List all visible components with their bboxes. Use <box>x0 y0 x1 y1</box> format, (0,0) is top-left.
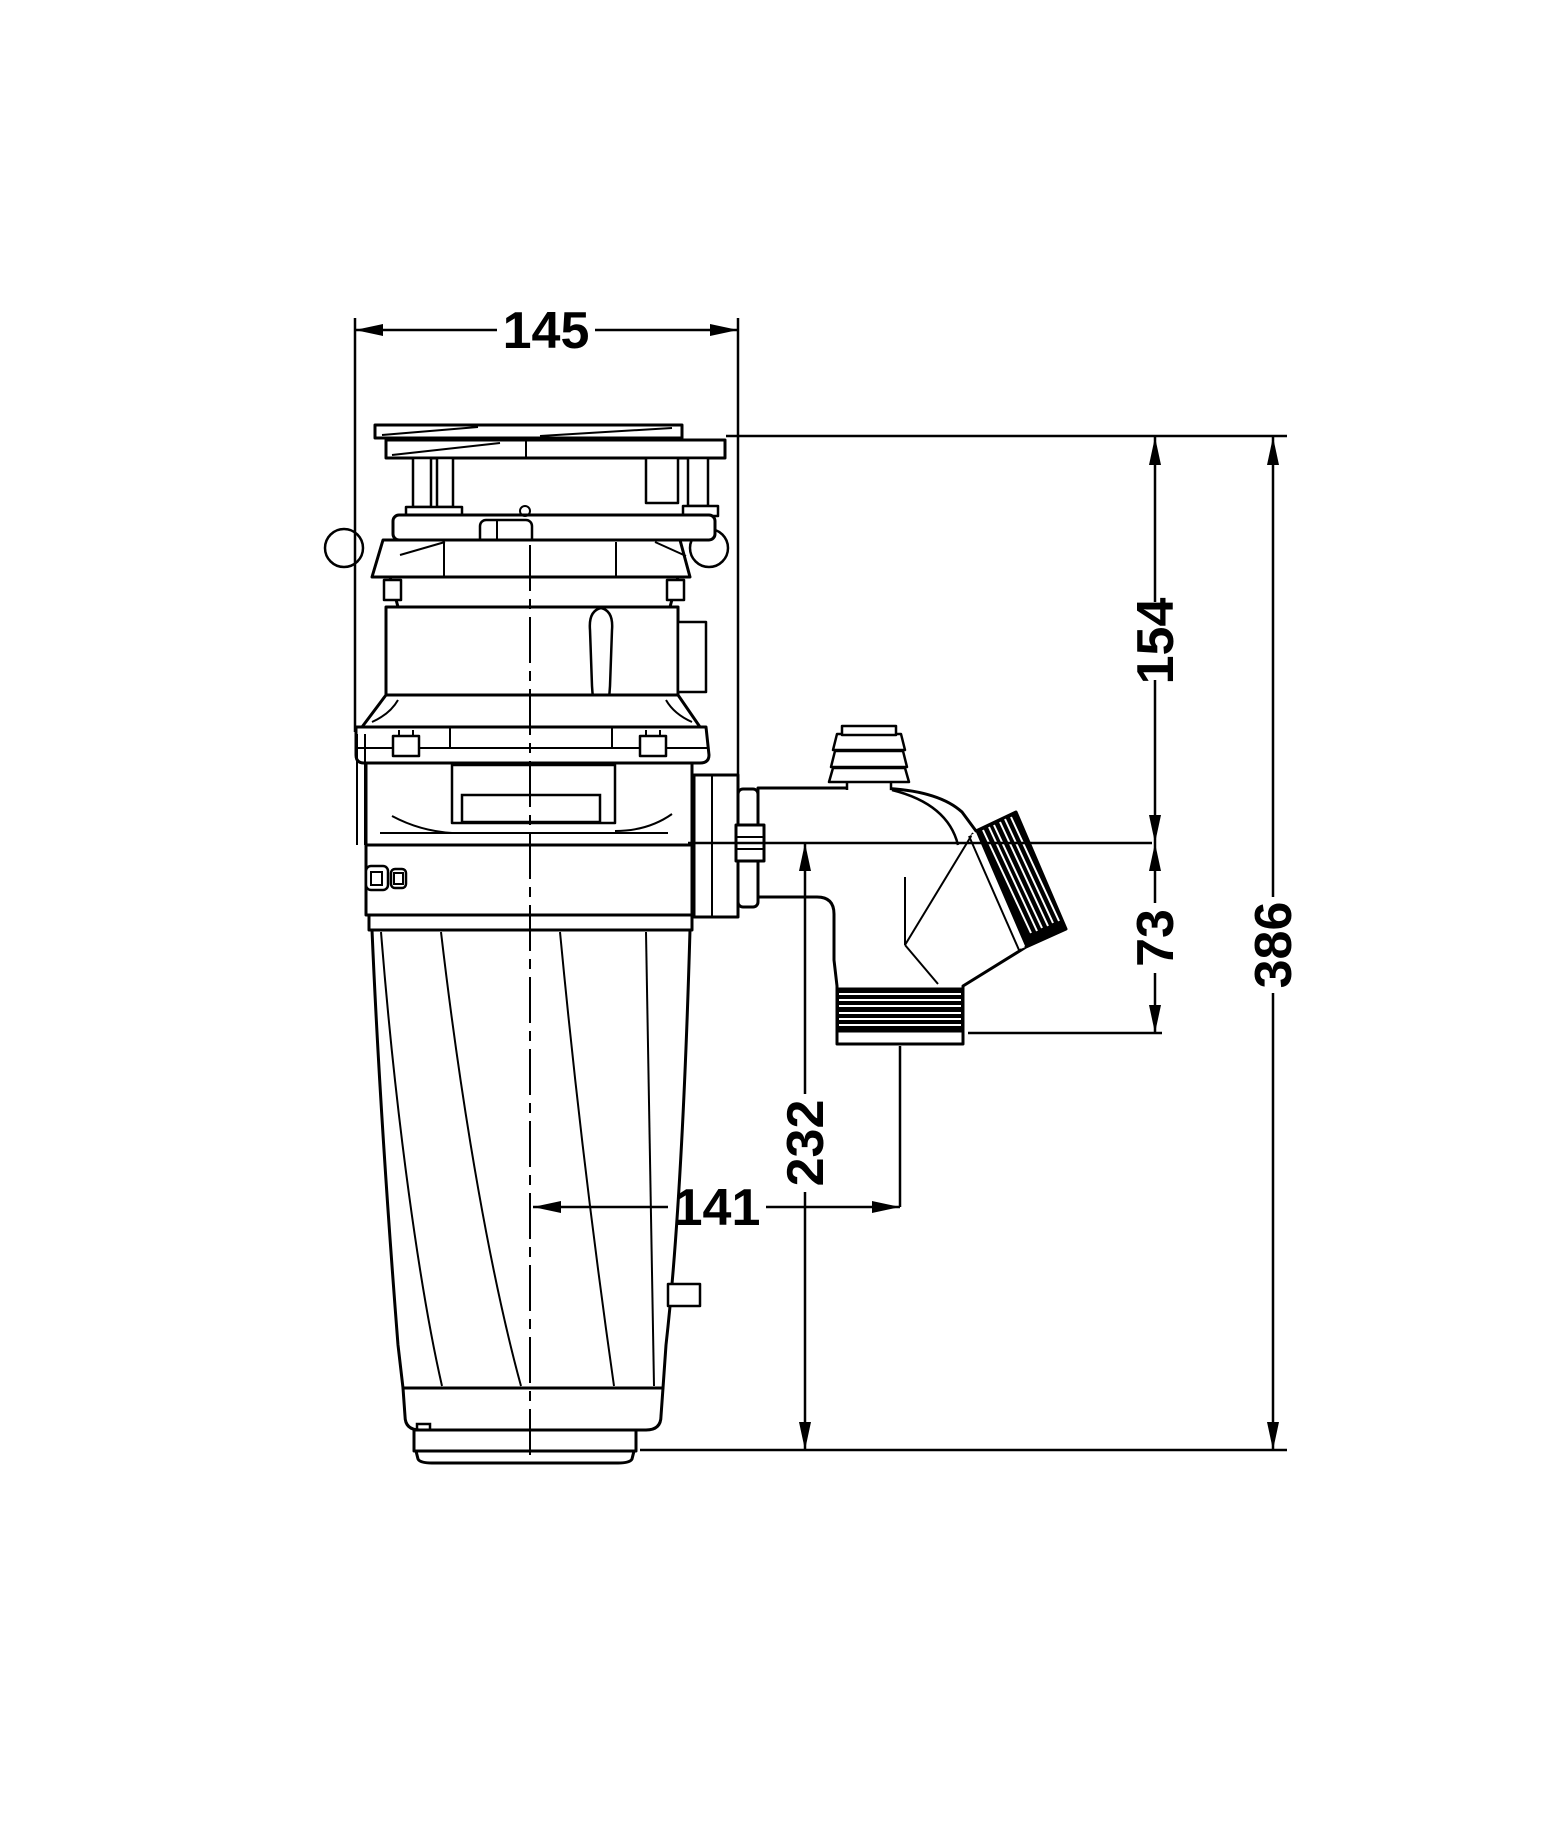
disposer-technical-drawing: 145 154 73 386 232 141 <box>0 0 1568 1844</box>
mount-ear-left <box>325 529 363 567</box>
dishwasher-inlet-barb <box>829 726 909 790</box>
mount-ring-upper-band <box>393 515 715 540</box>
dim-arrow <box>872 1201 900 1213</box>
reset-button-stub <box>668 1284 700 1306</box>
mounting-ring-assembly <box>325 506 728 607</box>
dimension-overall-height: 386 <box>1245 437 1303 1450</box>
base-ring <box>414 1430 636 1451</box>
dim-arrow <box>1267 1422 1279 1450</box>
dim-label-154: 154 <box>1127 598 1185 685</box>
drawing-canvas: 145 154 73 386 232 141 <box>0 0 1568 1844</box>
terminal-clip <box>366 866 388 890</box>
collar-bolt-right <box>640 736 666 756</box>
dimension-outlet-to-base: 232 <box>777 843 835 1450</box>
barb-cap <box>842 726 896 735</box>
dim-label-232: 232 <box>777 1100 835 1187</box>
support-stud <box>413 458 431 507</box>
dim-arrow <box>1149 1005 1161 1033</box>
dim-arrow <box>710 324 738 336</box>
threaded-coupling-lower <box>837 988 963 1032</box>
support-stud <box>437 458 453 507</box>
dim-arrow <box>799 1422 811 1450</box>
outlet-mount-plate <box>694 775 738 917</box>
grind-chamber-housing <box>386 607 678 695</box>
barb-ring <box>831 751 907 767</box>
collar-bolt-left <box>393 736 419 756</box>
dishwasher-boss <box>678 622 706 692</box>
sink-flange-assembly <box>375 425 725 516</box>
upper-housing <box>362 607 706 727</box>
barb-ring <box>829 768 909 782</box>
motor-housing <box>372 930 700 1388</box>
dim-arrow <box>1149 843 1161 871</box>
support-stud <box>646 458 678 503</box>
discharge-outlet-assembly <box>694 726 1066 1044</box>
dim-arrow <box>355 324 383 336</box>
dim-label-73: 73 <box>1127 909 1185 967</box>
gasket-ring <box>390 577 678 607</box>
dim-arrow <box>1149 815 1161 843</box>
sink-flange-lower-plate <box>386 440 725 458</box>
dim-label-386: 386 <box>1245 902 1303 989</box>
base-assembly <box>403 1388 663 1463</box>
base-plate <box>416 1451 634 1463</box>
base-transition-band <box>403 1388 663 1430</box>
dim-label-141: 141 <box>674 1179 761 1237</box>
dimension-top-to-outlet: 154 <box>1127 437 1185 843</box>
dimension-outlet-drop: 73 <box>1127 843 1185 1033</box>
barb-ring <box>833 734 905 750</box>
dim-arrow <box>1267 437 1279 465</box>
gasket-tab-left <box>384 580 401 600</box>
gasket-tab-right <box>667 580 684 600</box>
dim-label-145: 145 <box>503 302 590 360</box>
dim-arrow <box>1149 437 1161 465</box>
support-stud <box>688 458 708 506</box>
